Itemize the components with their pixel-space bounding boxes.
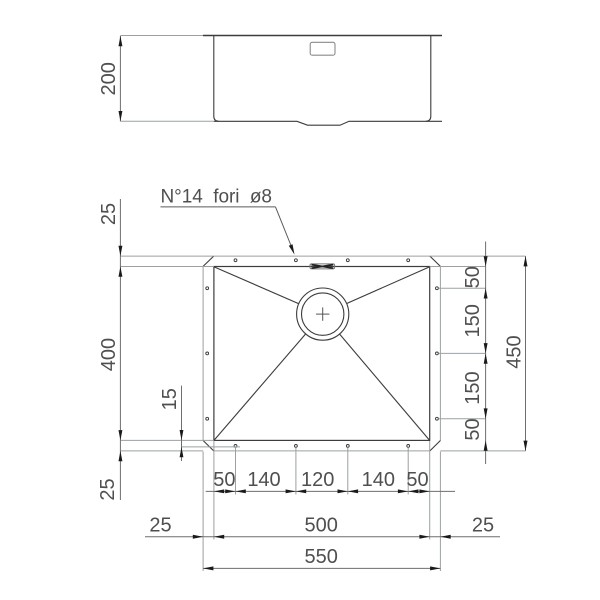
svg-text:400: 400 xyxy=(98,338,120,371)
svg-text:550: 550 xyxy=(305,546,338,568)
svg-text:200: 200 xyxy=(98,62,120,95)
svg-text:50: 50 xyxy=(462,266,484,288)
svg-text:140: 140 xyxy=(362,469,395,491)
svg-text:25: 25 xyxy=(472,514,494,536)
svg-text:25: 25 xyxy=(97,478,119,500)
svg-text:N°14 fori ø8: N°14 fori ø8 xyxy=(161,187,272,208)
svg-text:15: 15 xyxy=(159,388,181,410)
svg-text:150: 150 xyxy=(462,304,484,337)
svg-text:25: 25 xyxy=(98,203,120,225)
svg-text:50: 50 xyxy=(213,469,235,491)
svg-text:500: 500 xyxy=(305,514,338,536)
svg-text:140: 140 xyxy=(247,469,280,491)
svg-text:50: 50 xyxy=(406,469,428,491)
svg-text:450: 450 xyxy=(503,335,525,368)
svg-text:50: 50 xyxy=(462,418,484,440)
svg-text:25: 25 xyxy=(149,514,171,536)
svg-text:120: 120 xyxy=(301,469,334,491)
svg-text:150: 150 xyxy=(462,371,484,404)
